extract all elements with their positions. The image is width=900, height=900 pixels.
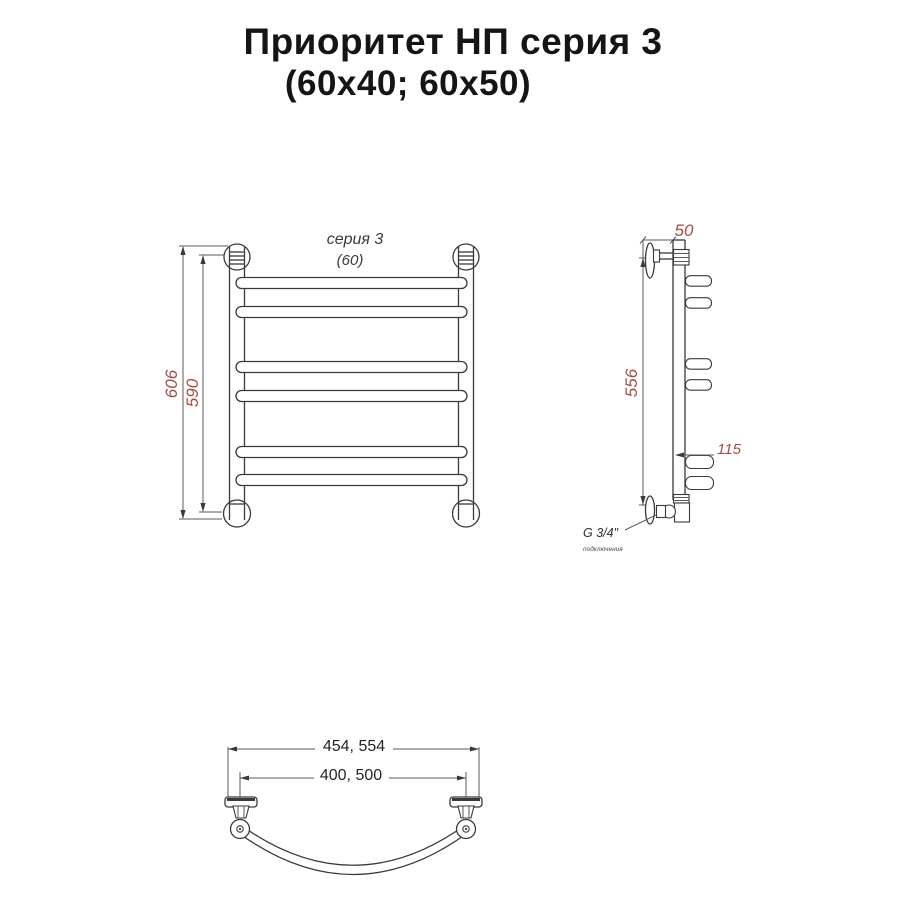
pipe-elbow (675, 503, 690, 522)
rung (686, 359, 712, 370)
front-top-right-mount (453, 244, 479, 270)
side-bottom-bracket (646, 495, 690, 525)
bottom-rung (686, 477, 714, 490)
screw-center (465, 828, 467, 830)
drawing-svg: Приоритет НП серия 3 (60x40; 60x50) 606 … (0, 0, 900, 900)
side-dim-556: 556 (622, 240, 650, 505)
side-pipe (673, 240, 685, 500)
page-title: Приоритет НП серия 3 (243, 21, 662, 62)
rung (686, 298, 712, 309)
bracket-stem (233, 806, 249, 818)
bottom-dim-inner: 400, 500 (240, 765, 466, 784)
dim-overall-height-label: 606 (162, 369, 181, 398)
front-rungs (236, 278, 467, 486)
dim-height-label: 556 (622, 368, 641, 397)
front-dim-590: 590 (183, 255, 228, 512)
rung (236, 278, 467, 289)
series-label: серия 3 (327, 231, 384, 248)
bracket-stem (458, 806, 474, 818)
front-view: 606 590 (162, 231, 480, 527)
rung (236, 307, 467, 318)
rung (686, 380, 712, 391)
rung (686, 276, 712, 287)
side-rungs (686, 276, 714, 490)
dim-bottom-rung-label: 115 (717, 441, 742, 458)
width-code-label: (60) (337, 252, 364, 269)
screw-center (239, 828, 241, 830)
side-dim-50: 50 (640, 221, 694, 244)
thread-size-label: G 3/4" (583, 526, 619, 540)
side-view: 50 556 (583, 221, 742, 553)
dim-mount-width-label: 400, 500 (320, 767, 382, 784)
bottom-rung (686, 456, 714, 469)
bottom-dim-outer: 454, 554 (228, 736, 479, 755)
side-top-bracket (646, 243, 690, 278)
valve-nut (657, 506, 666, 518)
dim-outer-width-label: 454, 554 (323, 738, 385, 755)
bottom-view: 454, 554 400, 500 (225, 736, 482, 875)
thread-callout: G 3/4" подключения (583, 515, 656, 553)
rung (236, 362, 467, 373)
page-subtitle: (60x40; 60x50) (285, 64, 531, 103)
ribbed-connector (674, 495, 690, 504)
technical-drawing-page: Приоритет НП серия 3 (60x40; 60x50) 606 … (0, 0, 900, 900)
curved-tube (240, 825, 466, 875)
front-top-left-mount (224, 244, 250, 270)
rung (236, 391, 467, 402)
rung (236, 475, 467, 486)
flange-hub (654, 250, 660, 262)
thread-note-label: подключения (583, 545, 623, 553)
dim-mount-height-label: 590 (183, 378, 202, 407)
dim-depth-label: 50 (675, 221, 694, 240)
rung (236, 447, 467, 458)
